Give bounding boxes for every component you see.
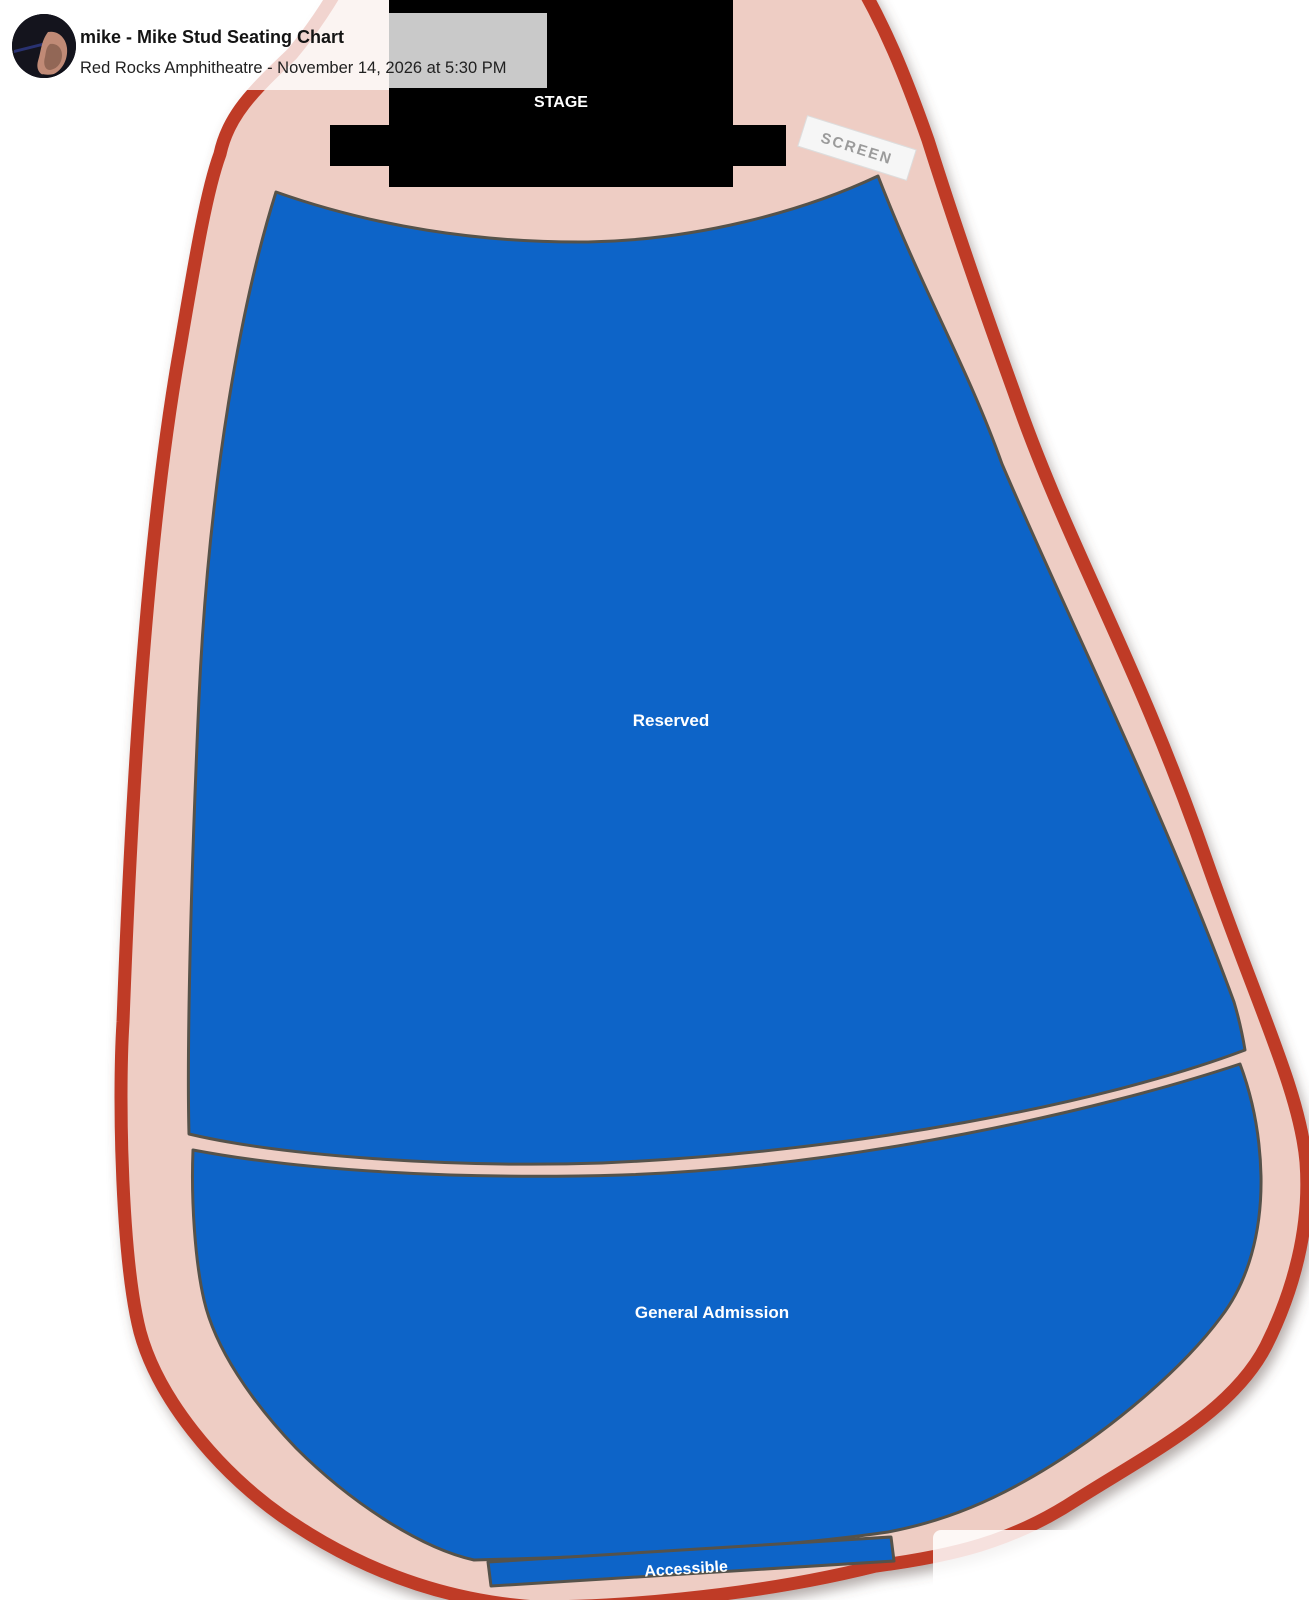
- avatar: [12, 14, 76, 78]
- page-subtitle: Red Rocks Amphitheatre - November 14, 20…: [80, 59, 506, 78]
- seating-chart-page: STAGE SCREEN Reserved General Admission …: [0, 0, 1309, 1600]
- header: mike - Mike Stud Seating Chart Red Rocks…: [0, 0, 560, 92]
- general-admission-label: General Admission: [635, 1303, 789, 1322]
- page-title: mike - Mike Stud Seating Chart: [80, 27, 344, 48]
- stage-label: STAGE: [534, 94, 588, 111]
- avatar-photo: [12, 14, 76, 78]
- reserved-label: Reserved: [633, 711, 710, 730]
- section-reserved[interactable]: [188, 176, 1245, 1164]
- seating-chart-svg: STAGE SCREEN Reserved General Admission …: [0, 0, 1309, 1600]
- footer-overlay: [933, 1530, 1309, 1600]
